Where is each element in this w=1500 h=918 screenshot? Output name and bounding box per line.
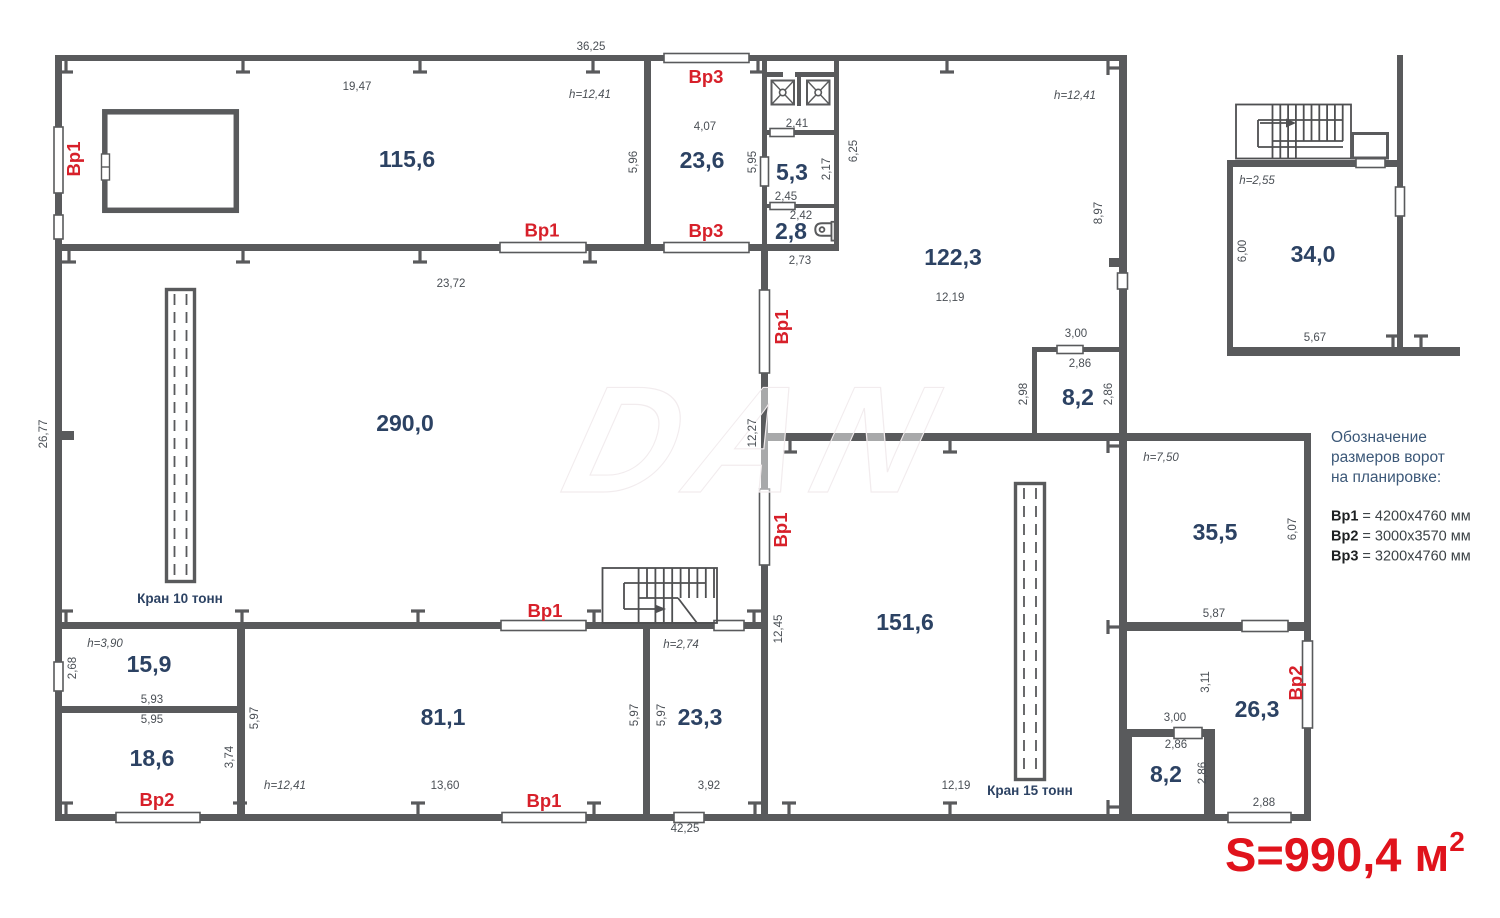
svg-text:Вр1: Вр1 <box>527 790 562 811</box>
svg-text:26,77: 26,77 <box>38 420 50 449</box>
svg-text:23,72: 23,72 <box>437 278 466 290</box>
svg-text:2,17: 2,17 <box>821 158 833 180</box>
svg-text:Вр1: Вр1 <box>525 220 560 241</box>
svg-text:5,97: 5,97 <box>249 707 261 729</box>
svg-text:S=990,4 м2: S=990,4 м2 <box>1225 826 1465 881</box>
svg-text:23,6: 23,6 <box>680 147 725 173</box>
svg-text:3,11: 3,11 <box>1200 671 1212 693</box>
svg-text:23,3: 23,3 <box>678 704 723 730</box>
svg-text:3,00: 3,00 <box>1065 328 1087 340</box>
svg-text:2,86: 2,86 <box>1103 383 1115 405</box>
svg-text:2,86: 2,86 <box>1197 762 1209 784</box>
svg-text:2,98: 2,98 <box>1018 383 1030 405</box>
svg-text:290,0: 290,0 <box>376 410 434 436</box>
svg-text:h=12,41: h=12,41 <box>569 89 611 101</box>
svg-text:5,97: 5,97 <box>629 704 641 726</box>
svg-text:Вр3: Вр3 <box>689 220 724 241</box>
svg-text:8,2: 8,2 <box>1150 761 1182 787</box>
svg-text:12,19: 12,19 <box>936 292 965 304</box>
svg-text:81,1: 81,1 <box>421 704 466 730</box>
svg-text:Вр1: Вр1 <box>771 310 792 345</box>
svg-text:6,00: 6,00 <box>1237 240 1249 262</box>
svg-text:26,3: 26,3 <box>1235 696 1280 722</box>
svg-text:2,8: 2,8 <box>775 218 807 244</box>
svg-text:2,42: 2,42 <box>790 210 812 222</box>
svg-text:19,47: 19,47 <box>343 81 372 93</box>
svg-text:Кран 10 тонн: Кран 10 тонн <box>137 591 223 606</box>
svg-text:6,07: 6,07 <box>1287 518 1299 540</box>
svg-text:Вр1: Вр1 <box>528 600 563 621</box>
svg-text:5,95: 5,95 <box>141 714 163 726</box>
svg-text:h=12,41: h=12,41 <box>1054 90 1096 102</box>
svg-text:5,95: 5,95 <box>747 151 759 173</box>
svg-text:122,3: 122,3 <box>924 244 982 270</box>
svg-text:36,25: 36,25 <box>577 41 606 53</box>
svg-text:8,2: 8,2 <box>1062 384 1094 410</box>
svg-text:2,73: 2,73 <box>789 255 811 267</box>
svg-text:2,41: 2,41 <box>786 118 808 130</box>
svg-text:5,93: 5,93 <box>141 694 163 706</box>
svg-text:12,19: 12,19 <box>942 780 971 792</box>
svg-text:35,5: 35,5 <box>1193 519 1238 545</box>
svg-text:5,87: 5,87 <box>1203 608 1225 620</box>
svg-text:115,6: 115,6 <box>379 146 435 172</box>
svg-text:Обозначение: Обозначение <box>1331 429 1427 446</box>
svg-text:Вр1 = 4200х4760 мм: Вр1 = 4200х4760 мм <box>1331 509 1471 525</box>
svg-text:3,92: 3,92 <box>698 780 720 792</box>
svg-text:6,25: 6,25 <box>848 140 860 162</box>
svg-text:5,96: 5,96 <box>628 151 640 173</box>
svg-text:8,97: 8,97 <box>1093 202 1105 224</box>
svg-text:Вр1: Вр1 <box>770 513 791 548</box>
svg-text:13,60: 13,60 <box>431 780 460 792</box>
svg-text:3,74: 3,74 <box>224 745 236 768</box>
svg-text:Вр1: Вр1 <box>63 142 84 177</box>
svg-text:5,3: 5,3 <box>776 159 808 185</box>
svg-text:Вр2 = 3000х3570 мм: Вр2 = 3000х3570 мм <box>1331 529 1471 545</box>
svg-text:2,68: 2,68 <box>67 657 79 679</box>
svg-text:2,86: 2,86 <box>1165 739 1187 751</box>
svg-text:2,45: 2,45 <box>775 191 797 203</box>
svg-text:5,67: 5,67 <box>1304 332 1326 344</box>
svg-text:3,00: 3,00 <box>1164 712 1186 724</box>
svg-text:4,07: 4,07 <box>694 121 716 133</box>
svg-text:2,88: 2,88 <box>1253 797 1275 809</box>
svg-text:Вр3 = 3200х4760 мм: Вр3 = 3200х4760 мм <box>1331 549 1471 565</box>
svg-text:5,97: 5,97 <box>656 704 668 726</box>
svg-text:34,0: 34,0 <box>1291 241 1336 267</box>
svg-text:15,9: 15,9 <box>127 651 172 677</box>
svg-text:12,27: 12,27 <box>747 419 759 448</box>
svg-text:размеров ворот: размеров ворот <box>1331 449 1445 466</box>
svg-text:12,45: 12,45 <box>773 615 785 644</box>
svg-text:h=2,74: h=2,74 <box>663 639 699 651</box>
svg-text:на планировке:: на планировке: <box>1331 469 1441 486</box>
svg-text:h=7,50: h=7,50 <box>1143 452 1179 464</box>
svg-text:42,25: 42,25 <box>671 823 700 835</box>
svg-text:Вр2: Вр2 <box>1285 666 1306 701</box>
svg-text:Вр3: Вр3 <box>689 66 724 87</box>
svg-text:18,6: 18,6 <box>130 745 175 771</box>
svg-text:h=12,41: h=12,41 <box>264 780 306 792</box>
svg-text:h=3,90: h=3,90 <box>87 638 123 650</box>
svg-text:h=2,55: h=2,55 <box>1239 175 1275 187</box>
svg-text:Кран 15 тонн: Кран 15 тонн <box>987 783 1073 798</box>
svg-text:151,6: 151,6 <box>876 609 934 635</box>
svg-text:2,86: 2,86 <box>1069 358 1091 370</box>
svg-text:Вр2: Вр2 <box>140 789 175 810</box>
